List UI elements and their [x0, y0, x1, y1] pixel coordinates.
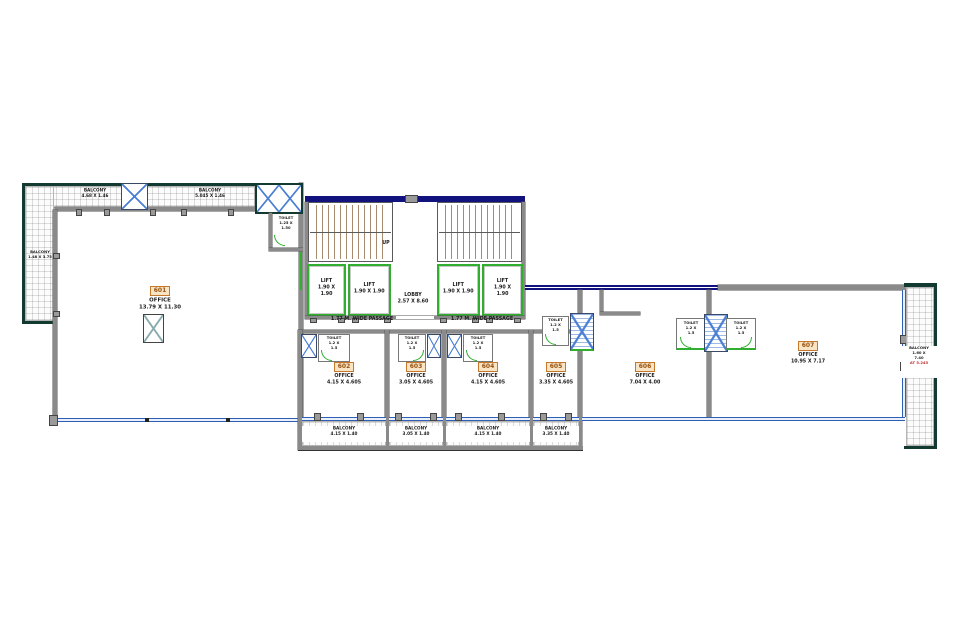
duct-icon	[255, 183, 303, 214]
passage-label-right: 1.77 M. WIDE PASSAGE	[432, 316, 532, 324]
stair-landing-line	[439, 232, 520, 233]
wall-post	[49, 415, 58, 426]
wall	[298, 446, 583, 450]
wall-post	[395, 413, 402, 421]
duct-icon	[570, 313, 594, 351]
passage-label-left: 1.77 M. WIDE PASSAGE	[312, 316, 412, 324]
wall	[269, 248, 303, 251]
door-leaf-icon	[300, 252, 302, 290]
office-606-label: 606 OFFICE 7.04 X 4.00	[615, 362, 675, 389]
wall	[298, 330, 583, 333]
outer-wall	[904, 446, 937, 449]
wall-post	[498, 413, 505, 421]
column-duct-icon	[143, 314, 164, 343]
office-601-label: 601 OFFICE 13.79 X 11.30	[120, 286, 200, 313]
wall	[707, 290, 711, 418]
wall-post	[53, 311, 60, 317]
lift-2: LIFT1.90 X 1.90	[348, 264, 391, 316]
passage-north-wall	[525, 285, 718, 290]
up-label: UP	[378, 240, 394, 248]
office-604-number-badge: 604	[478, 362, 499, 372]
duct-icon	[301, 334, 317, 358]
lift-3: LIFT1.90 X 1.90	[437, 264, 480, 316]
office-605-number-badge: 605	[546, 362, 567, 372]
wall	[53, 210, 57, 425]
wall	[600, 290, 603, 314]
duct-icon	[121, 183, 148, 210]
toilet-room: TOILET 1.2 X 1.5	[463, 334, 493, 362]
balcony-label: BALCONY 3.35 X 1.40	[533, 426, 579, 442]
wall-post	[181, 209, 187, 216]
outer-wall	[22, 321, 57, 324]
wall-post	[405, 195, 418, 203]
office-604-label: 604 OFFICE4.15 X 4.605	[446, 362, 530, 389]
staircase	[437, 202, 522, 262]
toilet-room: TOILET 1.2 X 1.5	[398, 334, 426, 362]
toilet-room: TOILET 1.2 X 1.5	[726, 318, 756, 350]
wall-post	[104, 209, 110, 216]
office-603-label: 603 OFFICE3.05 X 4.605	[389, 362, 443, 389]
wall-post	[357, 413, 364, 421]
office-606-number-badge: 606	[635, 362, 656, 372]
wall-post	[228, 209, 234, 216]
lift-4: LIFT1.90 X 1.90	[482, 264, 523, 316]
lobby-label: LOBBY 2.57 X 8.60	[390, 292, 436, 308]
balcony-label: BALCONY 4.15 X 1.40	[446, 426, 530, 442]
balcony-label: BALCONY 1.48 X 3.75	[19, 250, 61, 266]
door-arc-icon	[274, 235, 285, 246]
office-607-label: 607 OFFICE 10.95 X 7.17	[778, 341, 838, 368]
balcony-right-label: BALCONY 1.60 X 7.40 AT 5.245	[901, 346, 937, 378]
window-mullion	[226, 418, 230, 422]
duct-icon	[704, 314, 728, 352]
balcony-label: BALCONY 5.045 X 1.46	[175, 188, 245, 204]
office-602-number-badge: 602	[334, 362, 355, 372]
office-602-label: 602 OFFICE4.15 X 4.605	[302, 362, 386, 389]
duct-icon	[447, 334, 462, 358]
office-605-label: 605 OFFICE3.35 X 4.605	[533, 362, 579, 389]
door-arc-icon	[741, 337, 752, 348]
door-arc-icon	[680, 337, 691, 348]
wall	[718, 285, 906, 290]
wall-post	[314, 413, 321, 421]
wall-post	[430, 413, 437, 421]
toilet-room: TOILET 1.2 X 1.5	[542, 316, 569, 346]
wall	[600, 312, 640, 315]
staircase	[308, 202, 393, 262]
toilet-room: TOILET 1.2 X 1.5	[318, 334, 350, 362]
lift-1: LIFT1.90 X 1.90	[307, 264, 346, 316]
window-line	[57, 418, 300, 422]
window-line	[582, 417, 905, 421]
stair-landing-line	[310, 232, 391, 233]
wall-post	[540, 413, 547, 421]
floor-plan-canvas: BALCONY 4.68 X 1.46 BALCONY 5.045 X 1.46…	[0, 0, 957, 625]
duct-icon	[427, 334, 441, 358]
balcony-label: BALCONY 3.05 X 1.40	[389, 426, 443, 442]
door-arc-icon	[545, 334, 556, 345]
wall-post	[150, 209, 156, 216]
office-601-number-badge: 601	[150, 286, 171, 296]
level-note: AT 5.245	[910, 361, 928, 365]
wall-post	[76, 209, 82, 216]
wall-post	[565, 413, 572, 421]
toilet-room: TOILET 1.2 X 1.5	[676, 318, 706, 350]
window-mullion	[145, 418, 149, 422]
office-607-number-badge: 607	[798, 341, 819, 351]
balcony-label: BALCONY 4.15 X 1.40	[302, 426, 386, 442]
office-603-number-badge: 603	[406, 362, 427, 372]
wall-post	[455, 413, 462, 421]
balcony-label: BALCONY 4.68 X 1.46	[65, 188, 125, 204]
